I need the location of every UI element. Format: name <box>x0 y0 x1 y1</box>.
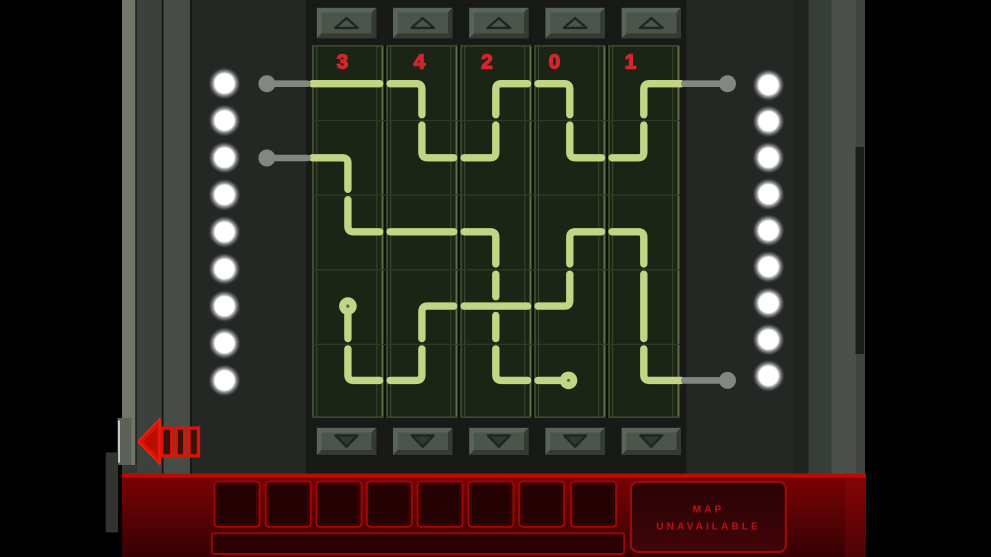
svg-text:UNAVAILABLE: UNAVAILABLE <box>656 522 761 533</box>
svg-text:0: 0 <box>549 51 560 74</box>
svg-text:1: 1 <box>625 51 636 74</box>
svg-text:MAP: MAP <box>693 505 725 516</box>
svg-text:3: 3 <box>337 51 348 74</box>
svg-text:4: 4 <box>414 51 426 74</box>
svg-text:2: 2 <box>481 51 492 74</box>
